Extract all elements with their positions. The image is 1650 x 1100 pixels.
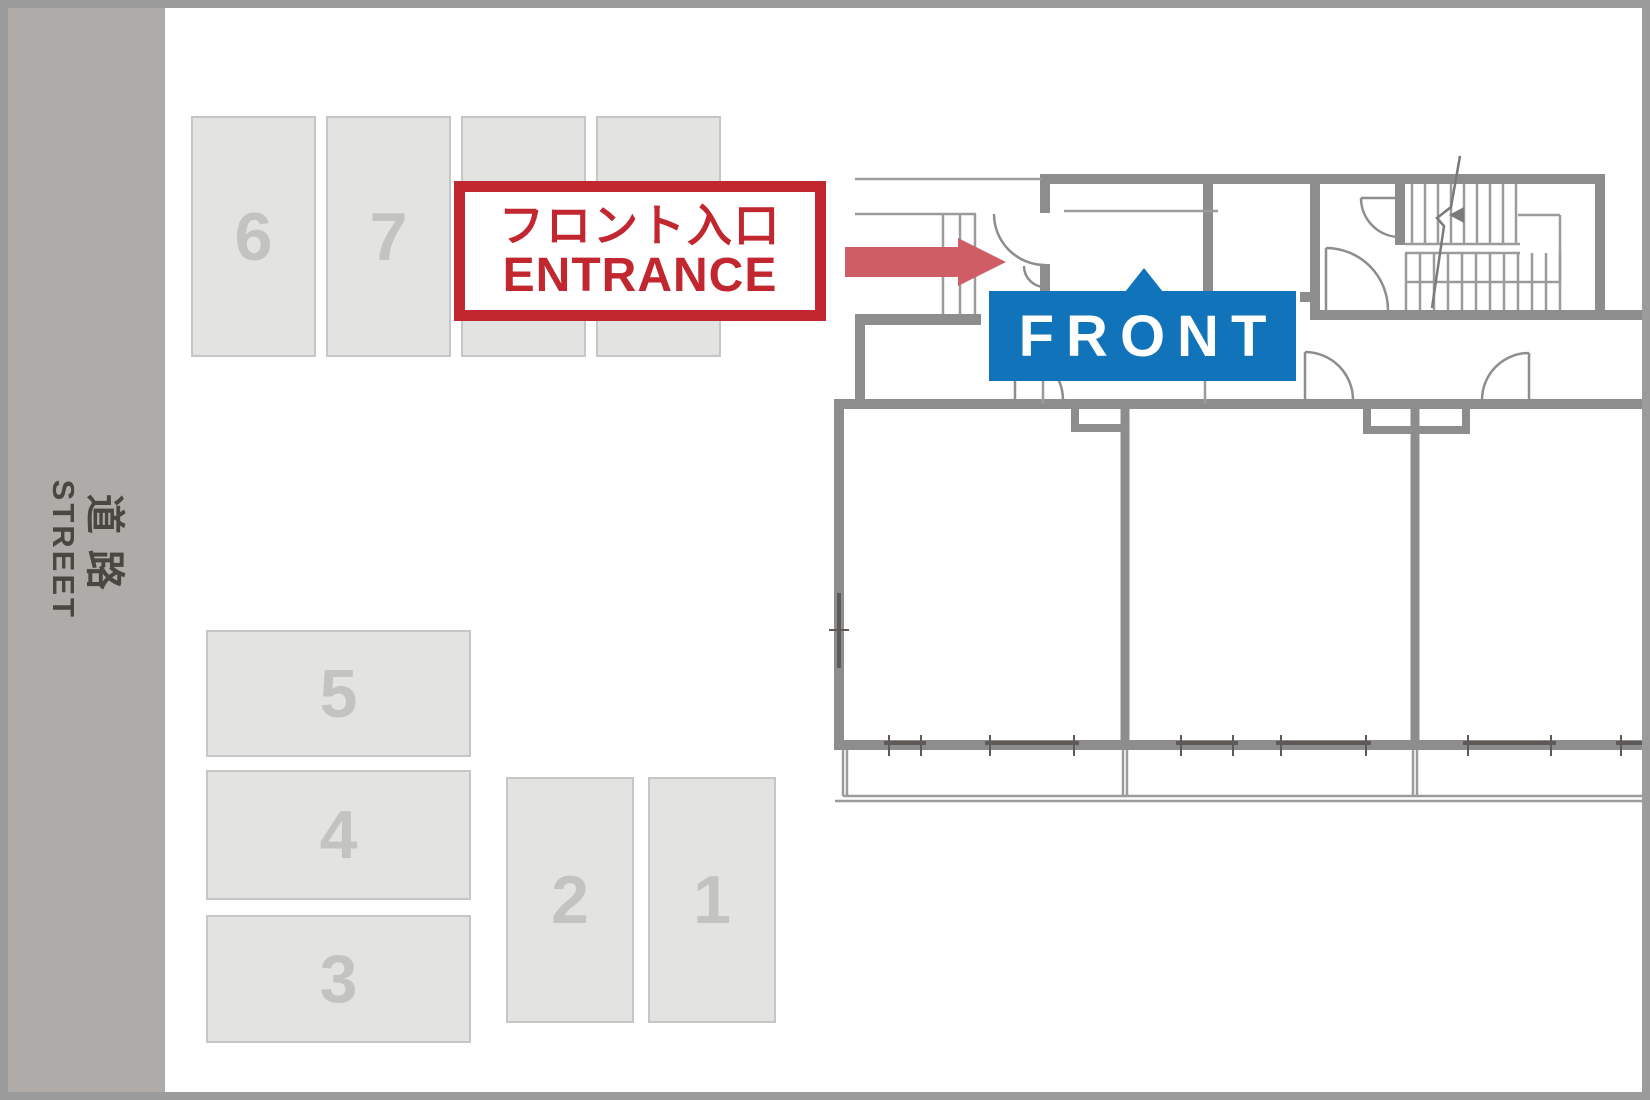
- entrance-label: フロント入口 ENTRANCE: [454, 181, 826, 321]
- window-symbols: [839, 593, 1650, 743]
- access-map: 道路 STREET 6 7 5 4 3 2 1: [0, 0, 1650, 1100]
- window-ticks: [829, 630, 1621, 756]
- front-label-pointer-icon: [1125, 268, 1163, 292]
- entrance-label-en: ENTRANCE: [503, 251, 778, 301]
- entrance-label-jp: フロント入口: [499, 201, 781, 251]
- floor-plan: [8, 8, 1650, 1100]
- entrance-direction-arrow-icon: [845, 238, 1006, 286]
- front-label: FRONT: [989, 291, 1296, 381]
